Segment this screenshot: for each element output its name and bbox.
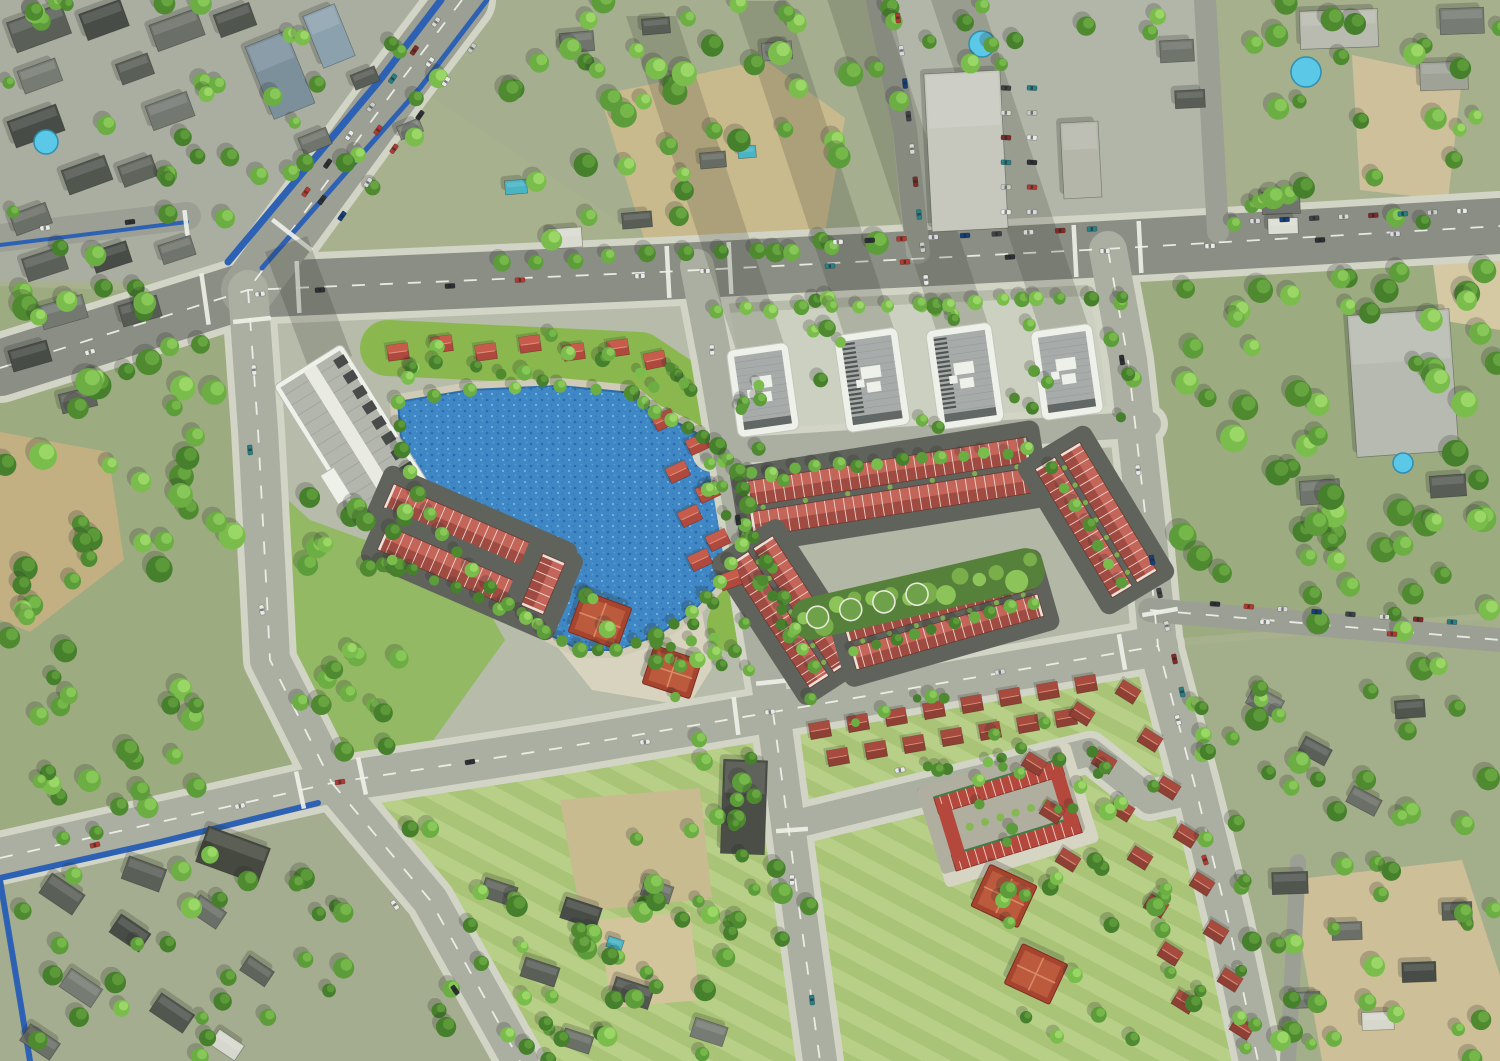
tree-highlight [195,150,204,159]
tree [721,510,732,521]
tree-highlight [70,574,79,583]
tree-highlight [977,775,984,782]
car [40,225,51,231]
tree-highlight [780,932,789,941]
tree-highlight [1199,702,1207,710]
tree-highlight [927,35,935,43]
tree-highlight [573,255,582,264]
tree-highlight [886,301,893,308]
car [1260,619,1270,624]
car [1398,211,1408,216]
tree-highlight [837,458,845,466]
tree-highlight [714,305,722,313]
tree-highlight [411,564,418,571]
tree-highlight [1277,1032,1288,1043]
tree-highlight [1109,918,1118,927]
car-windshield [828,264,831,268]
swimming-pool [34,130,58,154]
car [1135,465,1141,476]
car-windshield [710,348,714,351]
tree-highlight [1050,462,1057,469]
residential-tower [925,322,1004,430]
tree-highlight [107,458,116,467]
tree-highlight [1410,585,1422,597]
tree-highlight [294,877,303,886]
car-windshield [904,260,907,264]
car-windshield [924,278,928,281]
car [1387,631,1397,636]
car-windshield [1319,238,1322,242]
tree-highlight [380,705,391,716]
tree-highlight [86,771,99,784]
tree [630,637,641,648]
tree-highlight [1486,601,1498,613]
car [1100,248,1110,253]
car-windshield [1263,620,1266,624]
tree-highlight [968,55,979,66]
tree-highlight [193,779,204,790]
tree-highlight [1058,293,1065,300]
tree-highlight [596,645,603,652]
tree-highlight [399,443,408,452]
city-building [1435,2,1484,35]
city-building [1170,84,1205,109]
tree-highlight [366,561,375,570]
tree-highlight [653,893,664,904]
old-road-top-right [1205,0,1218,232]
tree [1054,805,1062,813]
tree-highlight [653,629,662,638]
tree [1116,577,1127,588]
tree-highlight [1287,286,1298,297]
car-windshield [1005,86,1008,90]
tree-highlight [1105,804,1115,814]
tree-highlight [1414,357,1423,366]
tree-highlight [1205,745,1214,754]
tree-highlight [697,896,704,903]
car [1379,614,1389,619]
tree-highlight [1277,709,1285,717]
tree-highlight [76,1009,87,1020]
tree-highlight [1289,992,1299,1002]
tree-highlight [577,923,586,932]
tree-highlight [857,302,864,309]
tree-highlight [641,94,650,103]
tree-highlight [1478,1011,1489,1022]
tree-highlight [606,250,614,258]
car-windshield [319,288,322,292]
car [896,236,906,241]
tree-highlight [1249,933,1260,944]
city-building [1425,469,1467,499]
tree-highlight [836,147,849,160]
tree-highlight [1297,95,1305,103]
tree-highlight [94,827,102,835]
tree-highlight [741,482,749,490]
tree-highlight [720,481,727,488]
city-building [1155,34,1194,63]
tree-highlight [794,15,805,26]
tree-highlight [75,399,87,411]
tree-highlight [743,519,751,527]
tree-highlight [735,794,743,802]
villa [516,332,542,354]
tree-highlight [396,650,407,661]
tree-highlight [578,643,587,652]
car [825,263,835,268]
tree-highlight [416,487,425,496]
tree [1006,823,1018,835]
car [1001,85,1011,90]
tree-highlight [1160,923,1169,932]
car [920,242,926,252]
tree-highlight [1379,888,1388,897]
tree-highlight [434,356,442,364]
car [900,259,910,264]
tree-highlight [1237,1011,1245,1019]
tree-highlight [634,833,641,840]
tree-highlight [384,739,394,749]
tree-highlight [709,36,721,48]
tree-highlight [307,489,318,500]
car-windshield [1209,244,1212,248]
tree-highlight [769,468,776,475]
car [640,739,651,745]
tree-highlight [1461,392,1476,407]
tree-highlight [1018,768,1025,775]
tree-highlight [702,981,714,993]
car-windshield [995,232,998,236]
tree-highlight [644,246,654,256]
tree-highlight [901,453,908,460]
car-windshield [252,368,256,371]
tree-highlight [752,532,759,539]
villa [995,684,1021,707]
tree-highlight [192,429,203,440]
tree [686,635,697,646]
tree-highlight [522,991,531,1000]
tree-highlight [11,206,18,213]
car [251,365,257,376]
tree-highlight [1309,1039,1316,1046]
car [735,515,741,526]
car [909,144,915,154]
tree-highlight [689,384,696,391]
tree-highlight [506,598,514,606]
tree [1103,559,1114,570]
tree-highlight [137,782,148,793]
car [902,78,908,88]
tree-highlight [363,513,374,524]
tree [939,693,950,704]
tree-highlight [1383,280,1396,293]
tree-highlight [1294,382,1309,397]
tree-highlight [222,210,233,221]
tree-highlight [1474,511,1486,523]
tree-highlight [141,293,153,305]
tree-highlight [567,39,579,51]
tree-highlight [1057,753,1065,761]
tree [923,761,933,771]
tree-highlight [488,581,496,589]
villa [899,731,925,754]
tree-highlight [66,687,76,697]
car-windshield [1005,111,1008,115]
tree-highlight [624,158,634,168]
tree-highlight [172,749,181,758]
tree-highlight [155,558,170,573]
car-windshield [896,16,900,19]
tree-highlight [712,123,721,132]
car [1447,619,1457,624]
tree-highlight [611,992,621,1002]
car-windshield [1450,620,1453,624]
tree [736,404,747,415]
tree-highlight [680,913,689,922]
tree-highlight [1309,587,1320,598]
tree-highlight [215,78,224,87]
tree-highlight [437,1004,445,1012]
tree-highlight [548,231,560,243]
car [709,345,715,355]
tree-highlight [288,165,297,174]
tree-highlight [708,458,715,465]
tree-highlight [743,618,750,625]
car [899,46,905,56]
tree-highlight [57,938,67,948]
tree-highlight [331,662,341,672]
tree [848,646,858,656]
tree-highlight [756,443,764,451]
tree-highlight [1205,390,1215,400]
tree [668,618,679,629]
tree-highlight [1253,709,1266,722]
tree [926,624,937,635]
tree-highlight [341,743,352,754]
tree-highlight [605,622,615,632]
tree [909,629,920,640]
tree-highlight [1432,514,1442,524]
tree-highlight [1363,772,1374,783]
tree-highlight [1083,18,1094,29]
tree-highlight [36,310,45,319]
tree-highlight [645,967,653,975]
tree [978,447,990,459]
tree-highlight [681,182,692,193]
car [1315,237,1325,242]
car-windshield [1005,160,1008,164]
car [1001,160,1011,165]
car [1457,208,1467,213]
tree-highlight [1388,863,1399,874]
villa [1071,671,1097,694]
tree-highlight [536,54,547,65]
tree-highlight [50,967,61,978]
car-windshield [248,448,252,451]
tree-highlight [824,321,834,331]
car-windshield [1059,229,1062,233]
tree-highlight [1088,519,1096,527]
tree-highlight [1019,743,1026,750]
tree-highlight [1461,905,1471,915]
tree-highlight [165,172,174,181]
tree-highlight [720,660,727,667]
tree [587,593,598,604]
car-windshield [932,235,935,239]
car-windshield [917,213,921,216]
tree-highlight [1456,1024,1463,1031]
tree-highlight [608,90,621,103]
tree-highlight [1190,339,1202,351]
tree-highlight [1168,967,1175,974]
tree-highlight [1008,600,1016,608]
tree-highlight [1400,622,1411,633]
car-windshield [790,878,794,881]
tree-highlight [1477,324,1489,336]
tree [969,611,981,623]
tree [789,463,800,474]
tree-highlight [315,77,324,86]
tree-highlight [1109,333,1118,342]
tree-highlight [695,653,704,662]
tree-highlight [327,985,335,993]
tree-highlight [783,123,792,132]
tree-highlight [80,533,91,544]
tree [429,575,439,585]
tree-highlight [172,401,181,410]
aerial-masterplan-render [0,0,1500,1061]
tree-highlight [550,991,558,999]
tree-highlight [514,897,526,909]
tree-highlight [1073,969,1082,978]
tree-highlight [270,89,281,100]
tree-highlight [1092,854,1101,863]
tree [916,452,928,464]
car-windshield [868,238,871,242]
tree-highlight [614,644,621,651]
tree-highlight [589,925,600,936]
tree-highlight [732,820,739,827]
tree-highlight [398,421,405,428]
car-windshield [1254,219,1257,223]
tree-highlight [318,696,329,707]
tree-highlight [479,957,487,965]
tree-highlight [1331,1032,1340,1041]
tree-highlight [1078,781,1086,789]
tree-highlight [1457,124,1465,132]
car [906,111,912,121]
tree-highlight [1315,395,1328,408]
aerial-masterplan-stage [0,0,1500,1061]
tree [835,337,846,348]
tree-highlight [370,181,379,190]
tree-highlight [1126,368,1134,376]
tree-highlight [1457,59,1469,71]
tree-highlight [61,832,69,840]
tree-highlight [78,516,88,526]
car [1001,135,1011,140]
car-windshield [1417,617,1420,621]
tree-highlight [409,362,416,369]
tree-highlight [524,1040,533,1049]
tree-highlight [6,628,18,640]
tree-highlight [747,665,754,672]
car-windshield [1349,612,1352,616]
tree-highlight [999,59,1006,66]
car-windshield [1283,218,1286,222]
tree-highlight [1239,966,1246,973]
tree-highlight [830,301,837,308]
tree-highlight [1337,270,1348,281]
tree-highlight [704,591,711,598]
tree-highlight [184,448,197,461]
tree [1116,412,1126,422]
tree-highlight [962,15,972,25]
car-windshield [910,147,914,150]
tree-highlight [1400,537,1411,548]
tree-highlight [993,729,1000,736]
tree-highlight [1230,427,1245,442]
tree-highlight [31,4,41,14]
tree-highlight [1241,396,1255,410]
tree-highlight [773,860,783,870]
tree-highlight [1153,899,1164,910]
tree-highlight [782,475,789,482]
tree-highlight [178,862,189,873]
tree [666,642,676,652]
car [1027,110,1037,115]
tree-highlight [1314,613,1327,626]
tree [913,694,922,703]
tree-highlight [689,824,697,832]
car-windshield [920,246,924,249]
tree-highlight [740,539,748,547]
city-building [1264,212,1299,234]
car-windshield [1390,632,1393,636]
tree-highlight [1103,762,1110,769]
car-windshield [837,240,840,244]
tree-highlight [1233,311,1243,321]
tree-highlight [265,1010,274,1019]
tree-highlight [62,641,75,654]
tree-highlight [634,44,642,52]
car-windshield [964,234,967,238]
tree-highlight [1398,810,1407,819]
tree-highlight [1219,565,1230,576]
tree-highlight [1251,37,1261,47]
tree [1003,449,1014,460]
tree-highlight [1266,766,1274,774]
tree-highlight [729,558,737,566]
car-windshield [1005,210,1008,214]
car [1027,160,1037,165]
tree-highlight [809,694,816,701]
tree-highlight [1244,1043,1251,1050]
tree [1009,393,1020,404]
car [515,277,525,282]
tree-highlight [666,138,676,148]
tree-highlight [348,643,357,652]
tree-highlight [620,104,634,118]
tree [871,458,883,470]
tree [998,762,1008,772]
tree-highlight [745,497,755,507]
tree-highlight [1485,768,1498,781]
tree-highlight [317,908,325,916]
tree-highlight [1314,995,1325,1006]
tree-highlight [718,576,726,584]
tree-highlight [653,655,662,664]
